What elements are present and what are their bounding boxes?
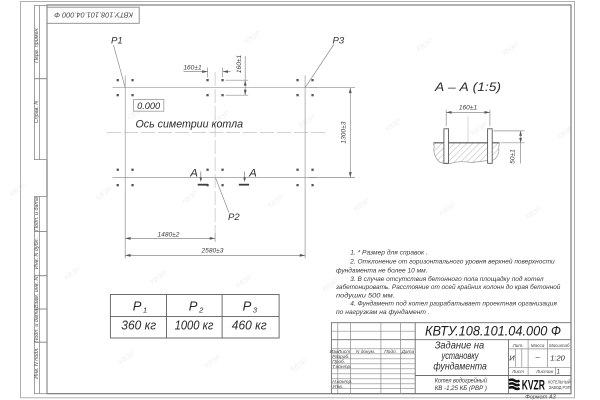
svg-text:Формат А3: Формат А3 xyxy=(525,394,556,400)
svg-text:1480±2: 1480±2 xyxy=(158,231,180,238)
svg-text:КВТУ.108.101.04.000 Ф: КВТУ.108.101.04.000 Ф xyxy=(54,10,133,19)
svg-text:0.000: 0.000 xyxy=(137,101,161,111)
svg-text:460 кг: 460 кг xyxy=(232,319,267,333)
svg-text:подушки 500 мм.: подушки 500 мм. xyxy=(336,292,395,300)
svg-text:P1: P1 xyxy=(111,36,123,47)
svg-text:N докум.: N докум. xyxy=(356,349,375,355)
svg-text:3. В случае отсутствия бето: 3. В случае отсутствия бетонного пола пл… xyxy=(350,275,544,283)
svg-text:Взам. инв. N: Взам. инв. N xyxy=(34,276,40,308)
svg-text:фундамента не более 10 мм.: фундамента не более 10 мм. xyxy=(336,266,428,274)
svg-text:Лист: Лист xyxy=(511,369,524,374)
svg-text:А: А xyxy=(189,167,198,179)
svg-text:1300±3: 1300±3 xyxy=(341,121,348,143)
svg-text:Проб.: Проб. xyxy=(332,359,345,365)
svg-text:160±1: 160±1 xyxy=(183,65,202,72)
svg-text:2580±3: 2580±3 xyxy=(201,247,224,254)
svg-text:КОТЕЛЬНЫЙ: КОТЕЛЬНЫЙ xyxy=(548,377,570,384)
svg-text:А – А (1:5): А – А (1:5) xyxy=(434,80,501,94)
svg-text:Масштаб: Масштаб xyxy=(549,343,570,348)
svg-text:P2: P2 xyxy=(228,212,240,223)
svg-text:КВ -1,25 КБ (РВР ): КВ -1,25 КБ (РВР ) xyxy=(435,385,487,392)
svg-text:Подп. и дата: Подп. и дата xyxy=(34,197,40,231)
svg-text:160±1: 160±1 xyxy=(459,104,478,111)
svg-text:Масса: Масса xyxy=(531,343,545,348)
svg-text:забетонировать. Расстояние о: забетонировать. Расстояние от осей крайн… xyxy=(335,283,561,291)
svg-text:И: И xyxy=(509,354,515,363)
svg-text:Дата: Дата xyxy=(400,349,414,355)
svg-text:2. Отклонение от горизонтал: 2. Отклонение от горизонтального уровня … xyxy=(349,258,555,266)
svg-text:1. * Размер для справок .: 1. * Размер для справок . xyxy=(350,249,428,257)
svg-text:160±1: 160±1 xyxy=(236,55,243,74)
svg-text:Котел водогрейный: Котел водогрейный xyxy=(435,376,488,384)
svg-text:4. Фундамент под котел раз: 4. Фундамент под котел разрабатывает про… xyxy=(350,300,557,308)
svg-text:KVZR: KVZR xyxy=(522,377,545,393)
svg-text:Перв. примен.: Перв. примен. xyxy=(34,27,40,63)
svg-text:А: А xyxy=(248,167,257,179)
svg-text:P3: P3 xyxy=(333,36,345,47)
svg-text:1000 кг: 1000 кг xyxy=(175,319,214,333)
svg-text:Справ. N: Справ. N xyxy=(34,101,40,124)
svg-text:Н.контр.: Н.контр. xyxy=(332,379,352,385)
svg-text:по нагрузкам на фундамент .: по нагрузкам на фундамент . xyxy=(336,308,430,316)
svg-text:Инв. N дубл.: Инв. N дубл. xyxy=(34,238,40,269)
svg-text:Листов: Листов xyxy=(535,369,553,374)
svg-text:50±1: 50±1 xyxy=(510,149,517,164)
svg-text:КВТУ.108.101.04.000 Ф: КВТУ.108.101.04.000 Ф xyxy=(425,323,561,338)
svg-text:1: 1 xyxy=(557,369,560,375)
svg-text:–: – xyxy=(535,352,541,361)
svg-text:Утв.: Утв. xyxy=(332,384,343,390)
svg-text:Лит.: Лит. xyxy=(512,343,524,348)
svg-text:фундамента: фундамента xyxy=(433,361,487,372)
svg-text:Т.контр.: Т.контр. xyxy=(332,364,351,370)
svg-text:360 кг: 360 кг xyxy=(121,319,156,333)
svg-text:Ось симетрии котла: Ось симетрии котла xyxy=(136,119,244,131)
svg-text:ЗАВОД РЭП: ЗАВОД РЭП xyxy=(549,385,571,390)
svg-text:1:20: 1:20 xyxy=(550,354,565,363)
svg-text:Инв. N подл.: Инв. N подл. xyxy=(34,347,40,379)
svg-text:Задание на: Задание на xyxy=(435,340,485,351)
svg-text:Подп.: Подп. xyxy=(384,349,397,355)
svg-text:Подп. и дата: Подп. и дата xyxy=(34,309,40,343)
